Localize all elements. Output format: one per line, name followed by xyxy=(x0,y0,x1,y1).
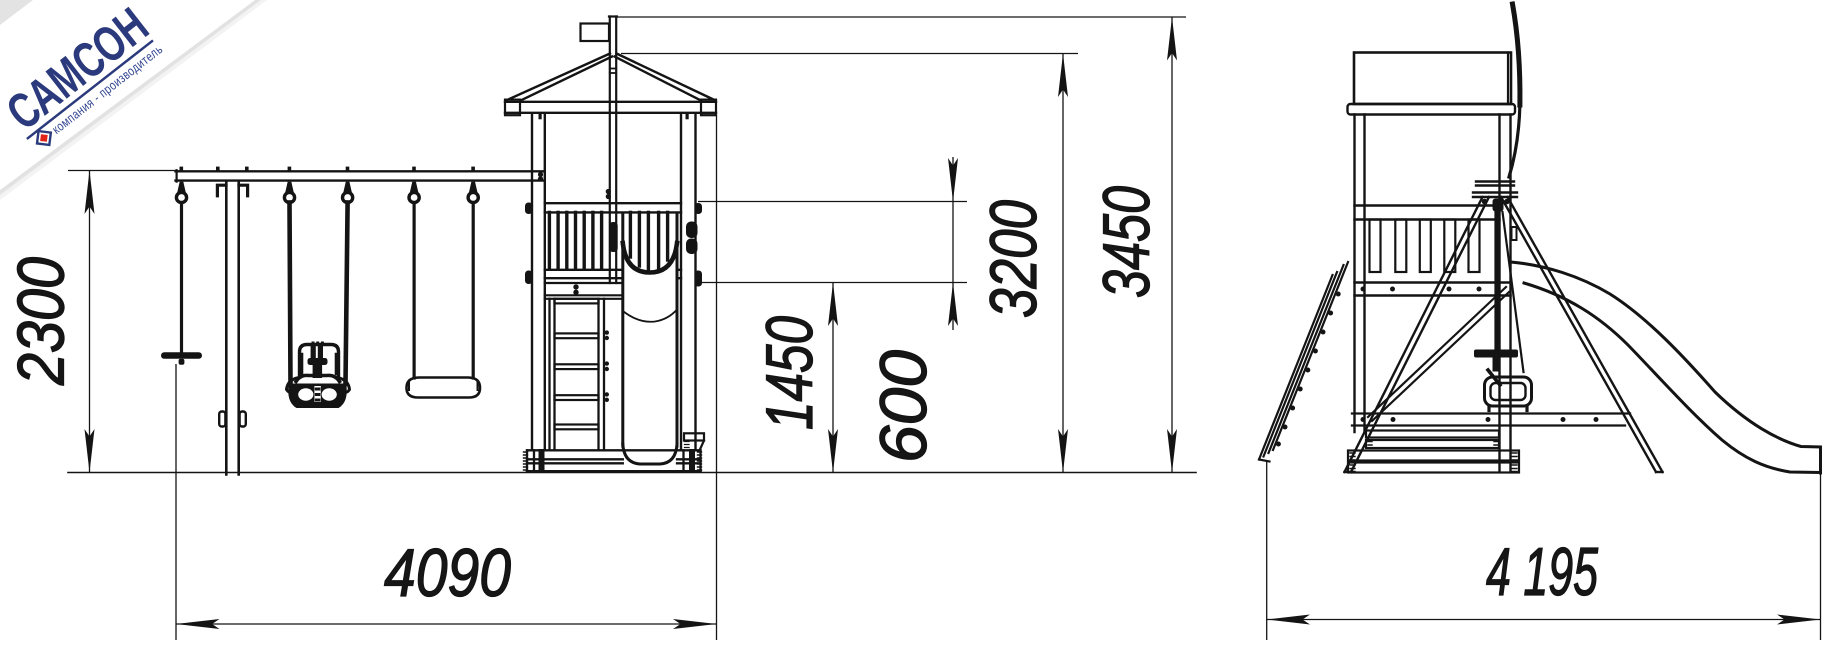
svg-text:3450: 3450 xyxy=(1089,186,1163,298)
svg-text:4090: 4090 xyxy=(384,535,511,611)
svg-text:2300: 2300 xyxy=(4,257,78,386)
svg-text:3200: 3200 xyxy=(976,200,1050,318)
svg-text:600: 600 xyxy=(866,350,940,463)
svg-text:1450: 1450 xyxy=(752,316,826,430)
svg-text:4 195: 4 195 xyxy=(1486,534,1598,610)
